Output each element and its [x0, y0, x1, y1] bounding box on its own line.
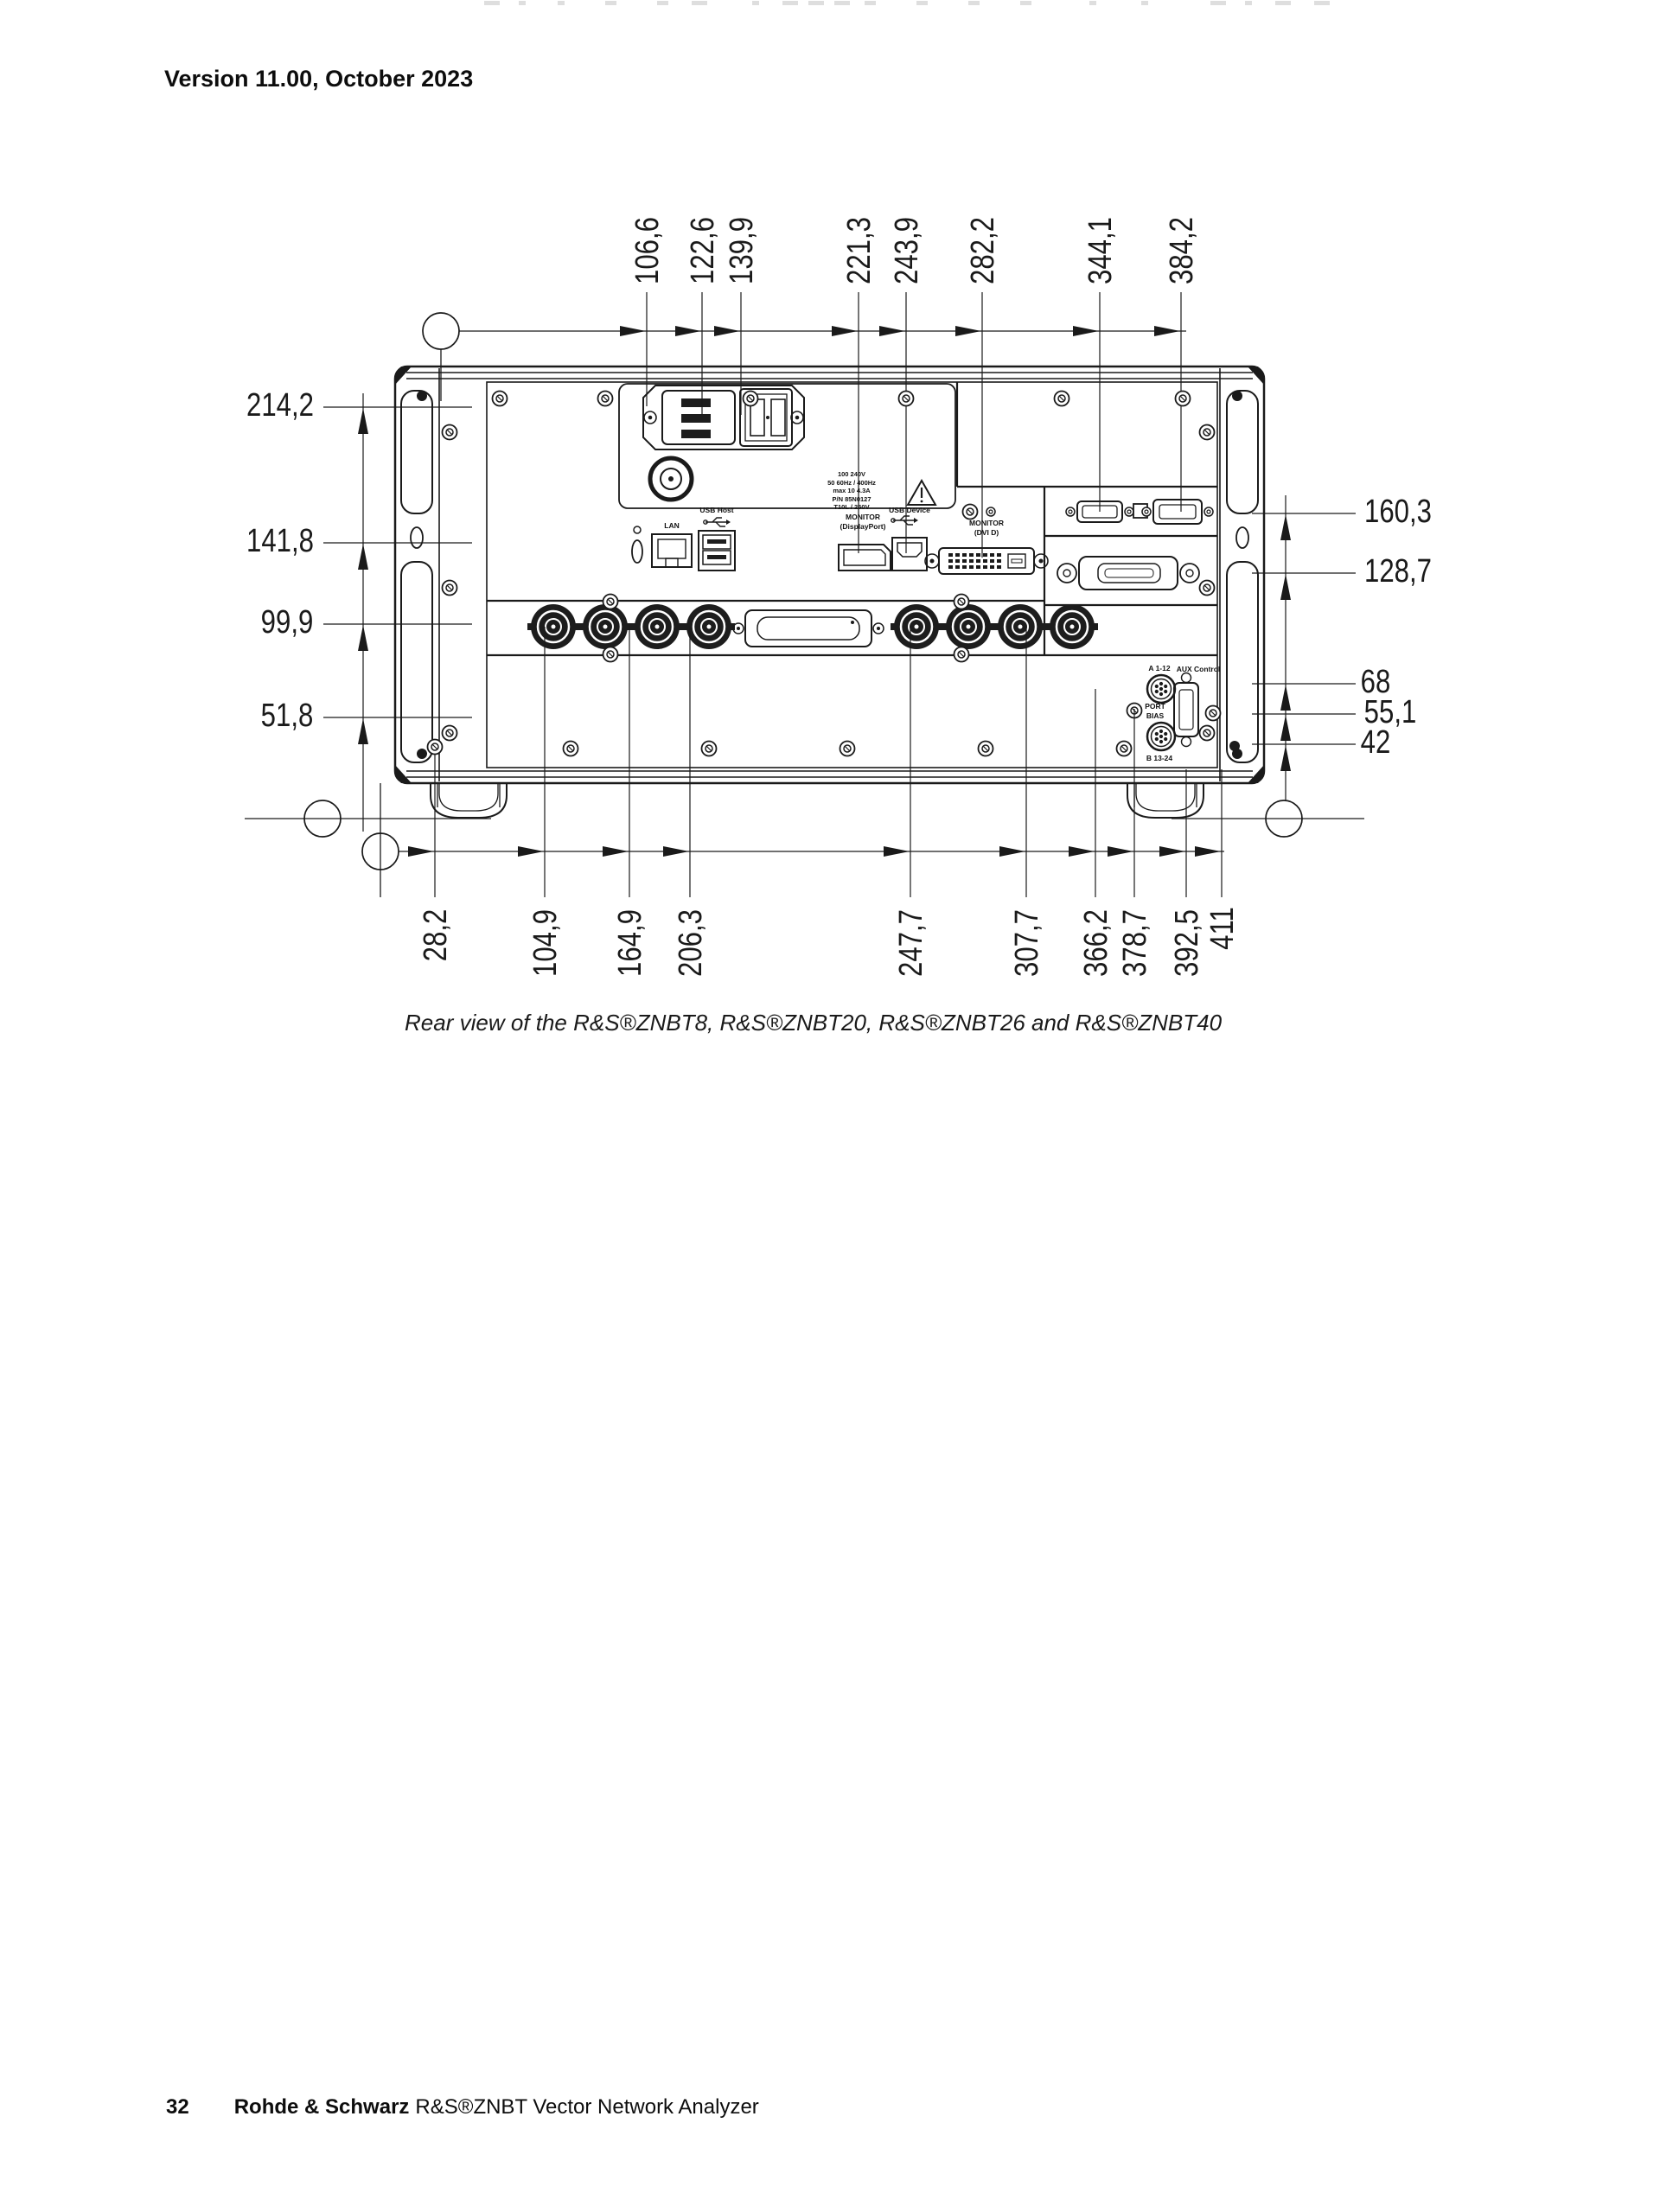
trigger-connector-2	[1142, 500, 1213, 524]
dim-label-bottom-4: 247,7	[895, 909, 928, 977]
usb-icon	[891, 516, 918, 525]
right-connector-panel	[963, 500, 1214, 590]
screw-icon	[1055, 392, 1069, 406]
chassis-outline	[395, 367, 1264, 783]
a1-12-connector	[1147, 675, 1175, 703]
screw-icon	[1117, 742, 1132, 756]
monitor-dp-label-2: (DisplayPort)	[840, 523, 886, 531]
displayport-connector	[839, 545, 891, 571]
bnc-connector	[527, 604, 579, 649]
page-footer: 32Rohde & SchwarzR&S®ZNBT Vector Network…	[166, 2095, 759, 2120]
screw-icon	[702, 742, 717, 756]
a1-12-label: A 1-12	[1148, 665, 1170, 673]
small-icons	[704, 516, 918, 526]
dim-label-left-3: 51,8	[261, 699, 314, 732]
dim-label-bottom-8: 392,5	[1171, 909, 1203, 977]
bnc-connector	[1046, 604, 1098, 649]
dim-label-bottom-0: 28,2	[419, 909, 452, 962]
bnc-connector	[942, 604, 994, 649]
screw-icon	[603, 647, 618, 662]
screw-icon	[598, 392, 613, 406]
dim-label-top-1: 122,6	[686, 217, 719, 284]
screw-icon	[443, 726, 457, 741]
dim-label-left-1: 141,8	[246, 525, 314, 558]
dim-label-bottom-6: 366,2	[1080, 909, 1113, 977]
gpib-connector	[1057, 557, 1199, 590]
screw-icon	[443, 425, 457, 440]
power-rating-line: 100 240V	[838, 471, 865, 478]
dim-label-bottom-5: 307,7	[1011, 909, 1044, 977]
b13-24-connector	[1147, 723, 1175, 750]
usb-icon	[704, 518, 731, 526]
usb-host-ports	[699, 531, 735, 571]
right-foot	[1127, 783, 1203, 818]
lan-label: LAN	[664, 522, 679, 530]
bnc-connector	[891, 604, 942, 649]
power-rating-line: max 10 4.3A	[833, 488, 870, 494]
dim-label-bottom-7: 378,7	[1119, 909, 1152, 977]
monitor-dvi-label-2: (DVI D)	[974, 529, 999, 537]
ac-inlet	[662, 391, 735, 444]
screw-icon	[493, 392, 508, 406]
screw-icon	[899, 392, 914, 406]
aux-control-label: AUX Control	[1177, 666, 1221, 673]
aux-control-connector	[1174, 673, 1198, 747]
port-bias-label-2: BIAS	[1146, 712, 1164, 720]
monitor-dvi-label-1: MONITOR	[969, 520, 1004, 527]
ground-connector	[650, 458, 692, 500]
screw-icon	[1200, 581, 1215, 596]
usb-host-label: USB Host	[699, 507, 733, 514]
dimension-chains	[363, 331, 1286, 851]
screw-icon	[564, 742, 578, 756]
screw-icon	[744, 392, 758, 406]
document-page: Version 11.00, October 2023	[0, 0, 1660, 2212]
page-number: 32	[166, 2095, 189, 2119]
footer-brand: Rohde & Schwarz	[234, 2095, 410, 2119]
bnc-connector	[631, 604, 683, 649]
screw-icon	[428, 740, 443, 755]
audio-connector	[632, 526, 642, 563]
bnc-connector	[683, 604, 735, 649]
b13-24-label: B 13-24	[1146, 755, 1172, 762]
dim-label-bottom-9: 411	[1206, 907, 1239, 950]
dim-label-right-4: 42	[1361, 726, 1391, 759]
dim-label-bottom-2: 164,9	[614, 909, 647, 977]
aux-connector-group	[1127, 673, 1241, 752]
screw-icon	[443, 581, 457, 596]
dim-label-right-1: 128,7	[1364, 555, 1432, 588]
dim-label-top-5: 282,2	[967, 217, 999, 284]
dim-label-top-6: 344,1	[1084, 217, 1117, 284]
screws	[428, 392, 1215, 756]
figure-caption: Rear view of the R&S®ZNBT8, R&S®ZNBT20, …	[405, 1010, 1222, 1036]
bnc-connector	[579, 604, 631, 649]
dvi-connector	[925, 548, 1048, 574]
power-rating-line: T10L / 250V	[833, 504, 869, 511]
usb-device-port	[892, 538, 927, 571]
footer-product: R&S®ZNBT Vector Network Analyzer	[415, 2095, 758, 2119]
screw-icon	[603, 595, 618, 609]
lan-port	[652, 534, 692, 567]
dim-label-top-4: 243,9	[891, 217, 923, 284]
dsub-connector	[733, 610, 884, 647]
port-bias-label-1: PORT	[1145, 703, 1165, 711]
usb-device-label: USB Device	[889, 507, 930, 514]
dim-label-top-3: 221,3	[843, 217, 876, 284]
dim-label-top-7: 384,2	[1165, 217, 1198, 284]
screw-icon	[954, 595, 969, 609]
power-rating-line: 50 60Hz / 400Hz	[827, 480, 876, 487]
dim-label-right-0: 160,3	[1364, 495, 1432, 528]
screw-icon	[1176, 392, 1191, 406]
monitor-dp-label-1: MONITOR	[846, 513, 880, 521]
screw-icon	[1200, 425, 1215, 440]
dim-label-bottom-3: 206,3	[674, 909, 707, 977]
dim-label-top-2: 139,9	[725, 217, 758, 284]
dim-label-left-2: 99,9	[261, 606, 314, 639]
dim-label-left-0: 214,2	[246, 389, 314, 422]
warning-triangle-icon	[908, 481, 935, 505]
power-rating-line: P/N 85N0127	[832, 496, 871, 503]
bnc-connector	[994, 604, 1046, 649]
dim-label-bottom-1: 104,9	[529, 909, 562, 977]
left-foot	[431, 783, 507, 818]
screw-icon	[1200, 726, 1215, 741]
dim-label-top-0: 106,6	[631, 217, 664, 284]
screw-icon	[954, 647, 969, 662]
screw-icon	[840, 742, 855, 756]
screw-icon	[979, 742, 993, 756]
